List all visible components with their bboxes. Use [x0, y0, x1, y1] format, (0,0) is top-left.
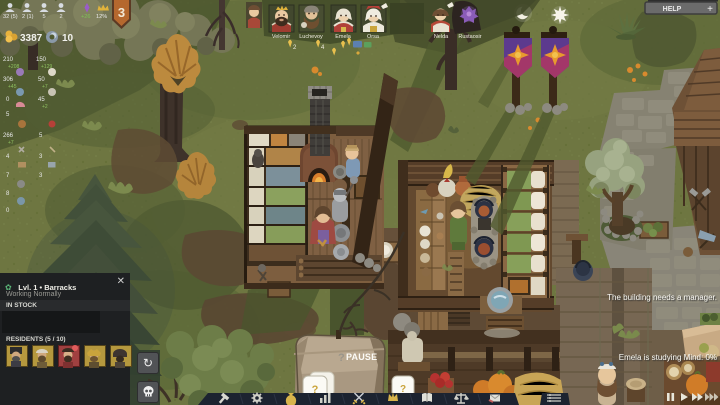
svg-text:Velomir: Velomir: [272, 34, 291, 40]
svg-text:+2: +2: [42, 104, 48, 110]
svg-text:+26: +26: [81, 14, 91, 20]
svg-text:Luchevoy: Luchevoy: [299, 34, 323, 40]
svg-text:266: 266: [3, 133, 14, 139]
svg-text:45: 45: [38, 97, 45, 103]
svg-text:+: +: [707, 4, 713, 15]
svg-text:2: 2: [60, 14, 63, 20]
svg-text:306: 306: [3, 77, 14, 83]
svg-text:150: 150: [36, 57, 47, 63]
svg-text:Rustaosir: Rustaosir: [458, 34, 481, 40]
svg-text:3387: 3387: [20, 33, 43, 44]
svg-text:PAUSE: PAUSE: [346, 352, 377, 362]
svg-text:5: 5: [43, 14, 46, 20]
svg-text:12%: 12%: [96, 14, 107, 20]
svg-text:Nelda: Nelda: [434, 34, 449, 40]
svg-text:+7: +7: [42, 84, 48, 90]
svg-text:3: 3: [118, 5, 125, 20]
svg-text:Orsa: Orsa: [367, 34, 380, 40]
svg-text:32 (5): 32 (5): [3, 14, 18, 20]
svg-text:50: 50: [38, 77, 45, 83]
svg-text:+45: +45: [8, 84, 17, 90]
svg-text:210: 210: [3, 57, 14, 63]
svg-text:HELP: HELP: [663, 6, 682, 13]
svg-text:2 (1): 2 (1): [22, 14, 34, 20]
svg-text:10: 10: [62, 33, 74, 44]
svg-text:?: ?: [338, 352, 345, 364]
svg-text:The building needs a manager.: The building needs a manager.: [607, 293, 717, 302]
svg-text:Emela is studying Mind: 0%: Emela is studying Mind: 0%: [619, 353, 717, 362]
svg-text:+7: +7: [8, 140, 14, 146]
